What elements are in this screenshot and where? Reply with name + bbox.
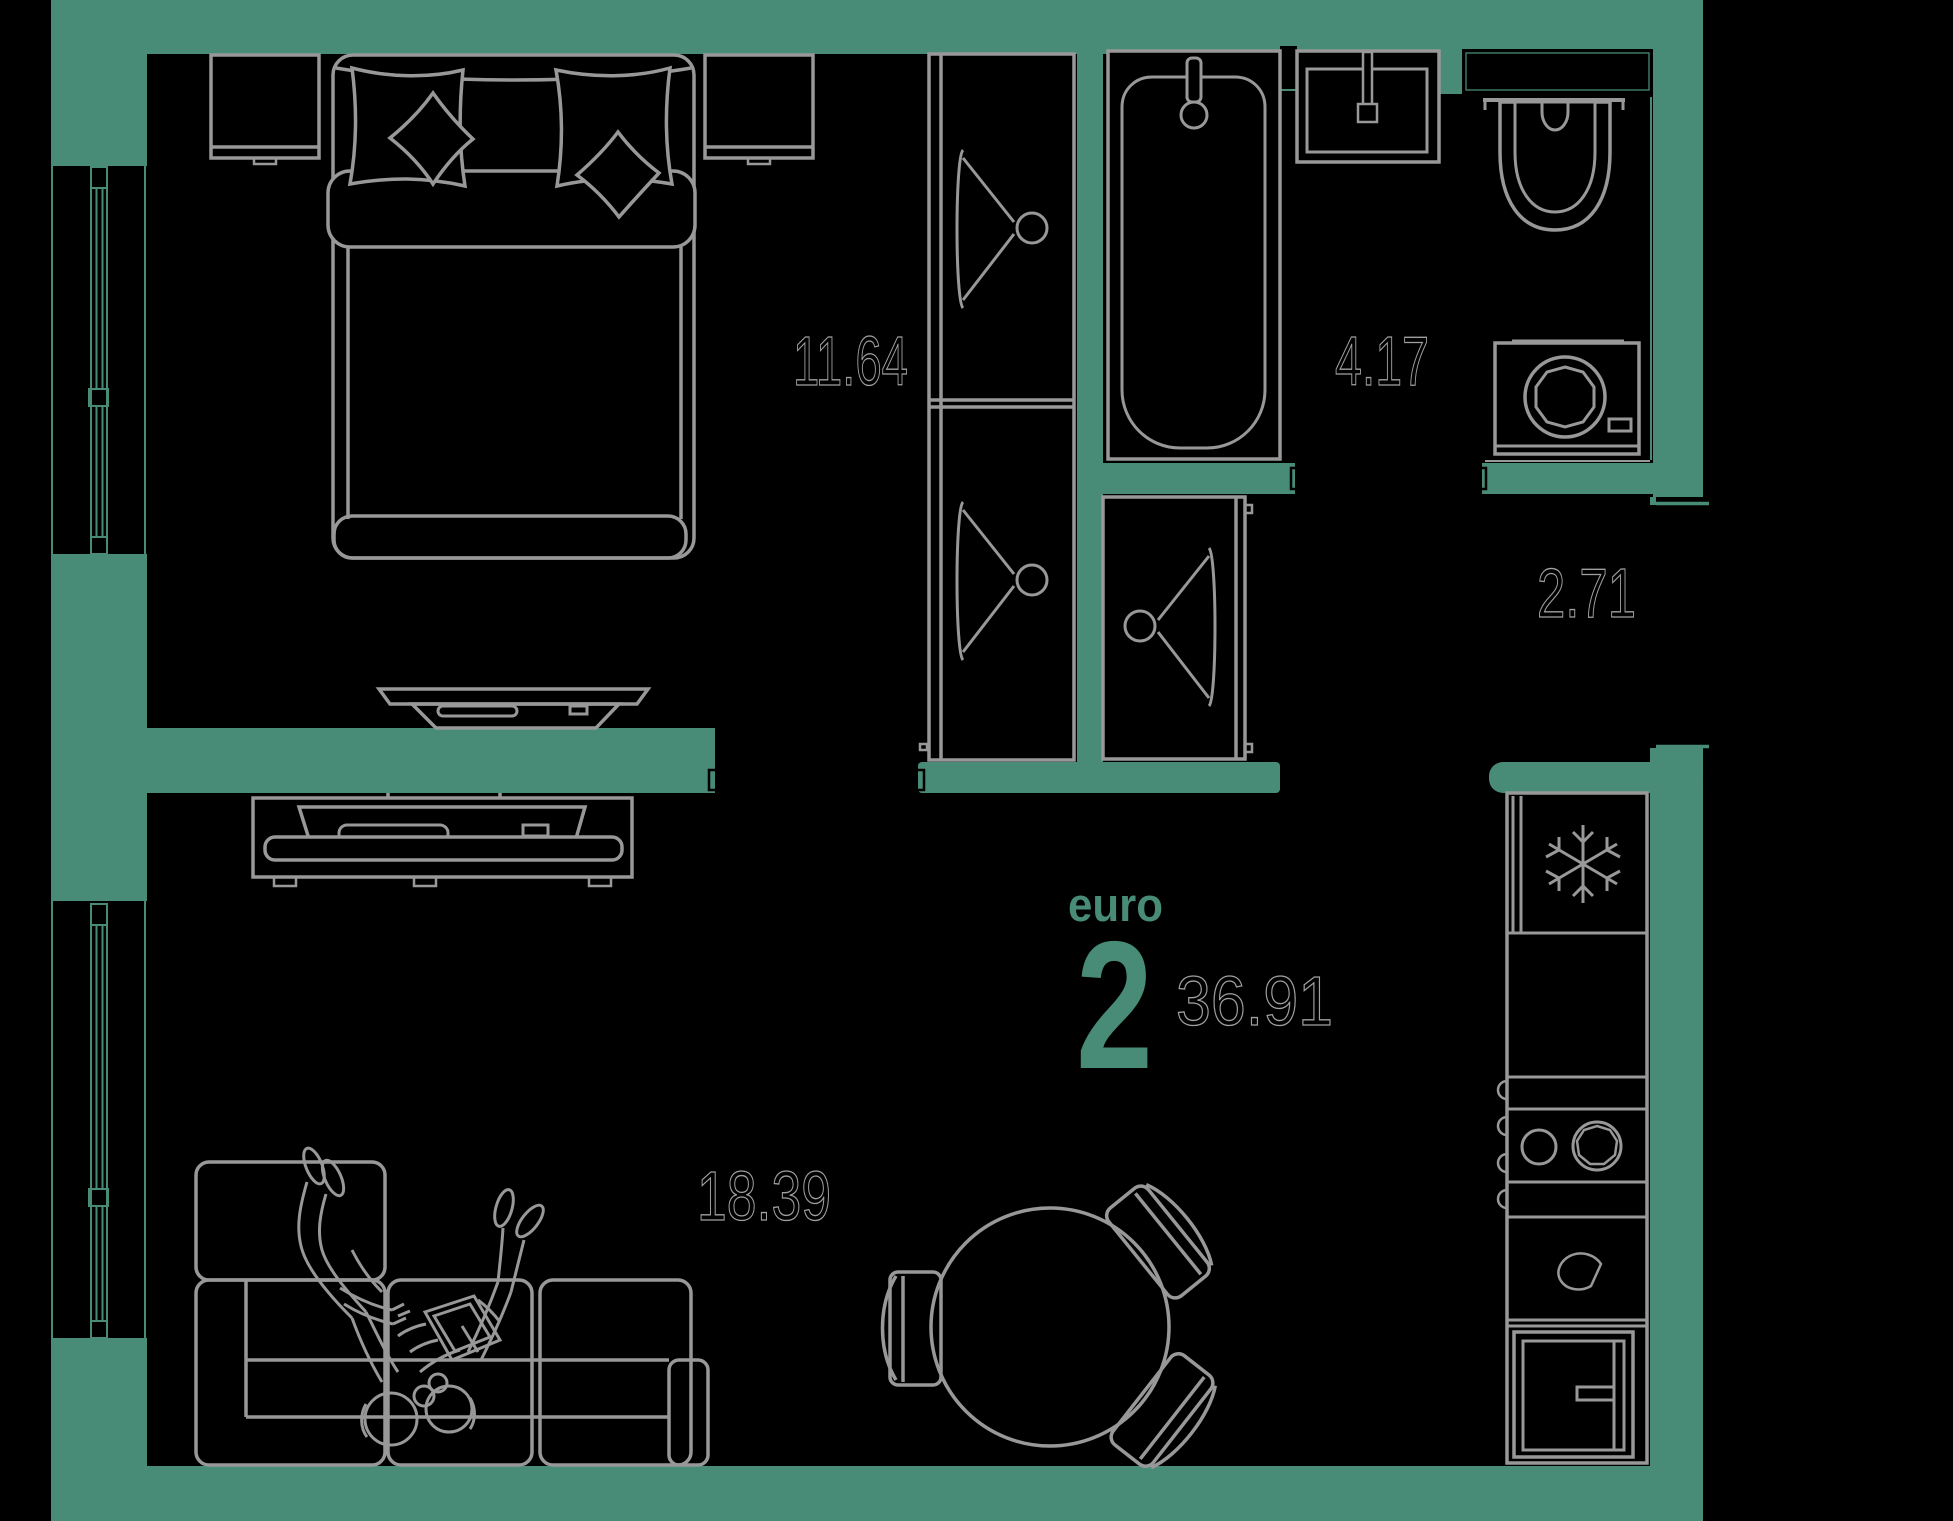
svg-text:4.17: 4.17	[1335, 322, 1429, 400]
svg-text:18.39: 18.39	[697, 1157, 831, 1235]
svg-text:2.71: 2.71	[1537, 554, 1636, 632]
svg-text:36.91: 36.91	[1176, 962, 1333, 1040]
svg-text:2: 2	[1076, 905, 1153, 1108]
svg-text:11.64: 11.64	[793, 322, 908, 400]
